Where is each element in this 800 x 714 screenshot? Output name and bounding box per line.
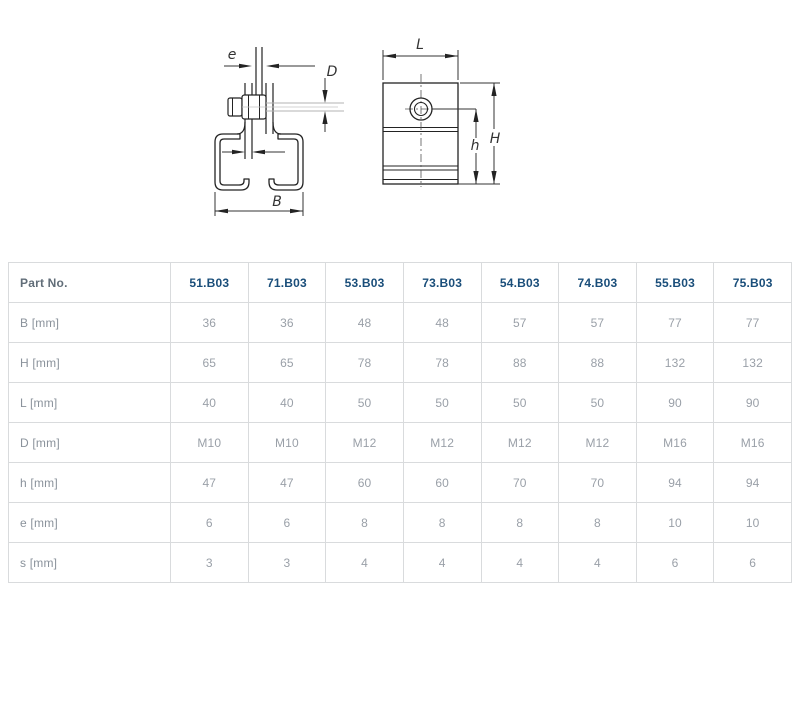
spec-value-cell: 48 bbox=[326, 303, 404, 343]
spec-value-cell: 3 bbox=[248, 543, 326, 583]
spec-value-cell: 4 bbox=[481, 543, 559, 583]
spec-value-cell: 40 bbox=[248, 383, 326, 423]
spec-value-cell: 70 bbox=[559, 463, 637, 503]
table-row: h [mm]4747606070709494 bbox=[9, 463, 792, 503]
spec-value-cell: 6 bbox=[171, 503, 249, 543]
part-no-header-label: Part No. bbox=[9, 263, 171, 303]
spec-value-cell: 57 bbox=[559, 303, 637, 343]
part-number-55b03[interactable]: 55.B03 bbox=[636, 263, 714, 303]
dim-h-arrow-bottom bbox=[473, 171, 478, 184]
spec-value-cell: 10 bbox=[636, 503, 714, 543]
datasheet-page: e D B bbox=[0, 0, 800, 714]
spec-value-cell: 88 bbox=[481, 343, 559, 383]
spec-value-cell: 50 bbox=[326, 383, 404, 423]
spec-value-cell: 90 bbox=[714, 383, 792, 423]
spec-value-cell: 3 bbox=[171, 543, 249, 583]
spec-value-cell: 57 bbox=[481, 303, 559, 343]
part-number-74b03[interactable]: 74.B03 bbox=[559, 263, 637, 303]
spec-value-cell: 65 bbox=[171, 343, 249, 383]
spec-value-cell: 90 bbox=[636, 383, 714, 423]
spec-value-cell: 8 bbox=[403, 503, 481, 543]
spec-value-cell: 77 bbox=[636, 303, 714, 343]
part-number-73b03[interactable]: 73.B03 bbox=[403, 263, 481, 303]
bolt-head bbox=[228, 98, 242, 116]
spec-value-cell: M12 bbox=[481, 423, 559, 463]
spec-value-cell: 50 bbox=[403, 383, 481, 423]
dim-s-arrow-left bbox=[232, 150, 245, 154]
table-row: D [mm]M10M10M12M12M12M12M16M16 bbox=[9, 423, 792, 463]
spec-value-cell: M10 bbox=[171, 423, 249, 463]
spec-value-cell: 78 bbox=[326, 343, 404, 383]
dim-H-arrow-top bbox=[491, 83, 496, 96]
spec-value-cell: 4 bbox=[559, 543, 637, 583]
plate-flares bbox=[237, 122, 281, 134]
table-row: H [mm]656578788888132132 bbox=[9, 343, 792, 383]
spec-value-cell: 36 bbox=[171, 303, 249, 343]
spec-value-cell: 8 bbox=[326, 503, 404, 543]
dim-L-arrow-right bbox=[445, 54, 458, 58]
table-row: s [mm]33444466 bbox=[9, 543, 792, 583]
dimension-label-B: B bbox=[272, 194, 282, 210]
spec-value-cell: 65 bbox=[248, 343, 326, 383]
spec-value-cell: M16 bbox=[714, 423, 792, 463]
dim-e-arrow-left bbox=[239, 64, 252, 68]
spec-value-cell: 50 bbox=[559, 383, 637, 423]
spec-value-cell: 88 bbox=[559, 343, 637, 383]
spec-value-cell: 4 bbox=[403, 543, 481, 583]
dim-L-arrow-left bbox=[383, 54, 396, 58]
spec-value-cell: 36 bbox=[248, 303, 326, 343]
part-number-75b03[interactable]: 75.B03 bbox=[714, 263, 792, 303]
spec-table-body: B [mm]3636484857577777H [mm]656578788888… bbox=[9, 303, 792, 583]
spec-value-cell: 77 bbox=[714, 303, 792, 343]
spec-value-cell: 94 bbox=[636, 463, 714, 503]
spec-value-cell: 6 bbox=[636, 543, 714, 583]
spec-value-cell: 6 bbox=[714, 543, 792, 583]
dimension-label-L: L bbox=[416, 37, 424, 53]
row-label: s [mm] bbox=[9, 543, 171, 583]
row-label: L [mm] bbox=[9, 383, 171, 423]
spec-value-cell: 132 bbox=[636, 343, 714, 383]
spec-value-cell: 47 bbox=[171, 463, 249, 503]
hanger-plate-right bbox=[266, 83, 273, 134]
spec-value-cell: 60 bbox=[326, 463, 404, 503]
spec-value-cell: M10 bbox=[248, 423, 326, 463]
dim-e-arrow-right bbox=[266, 64, 279, 68]
part-number-54b03[interactable]: 54.B03 bbox=[481, 263, 559, 303]
technical-drawing: e D B bbox=[178, 30, 518, 230]
table-row: e [mm]6688881010 bbox=[9, 503, 792, 543]
part-number-53b03[interactable]: 53.B03 bbox=[326, 263, 404, 303]
dimension-label-D: D bbox=[327, 64, 338, 80]
spec-value-cell: M16 bbox=[636, 423, 714, 463]
spec-value-cell: 60 bbox=[403, 463, 481, 503]
row-label: e [mm] bbox=[9, 503, 171, 543]
part-number-51b03[interactable]: 51.B03 bbox=[171, 263, 249, 303]
spec-value-cell: 94 bbox=[714, 463, 792, 503]
dim-D-arrow-top bbox=[322, 90, 327, 103]
table-row: L [mm]4040505050509090 bbox=[9, 383, 792, 423]
dim-B-arrow-left bbox=[215, 209, 228, 213]
dim-D-arrow-bottom bbox=[322, 111, 327, 124]
row-label: H [mm] bbox=[9, 343, 171, 383]
spec-value-cell: M12 bbox=[559, 423, 637, 463]
spec-value-cell: 10 bbox=[714, 503, 792, 543]
spec-value-cell: M12 bbox=[403, 423, 481, 463]
spec-value-cell: M12 bbox=[326, 423, 404, 463]
spec-table: Part No. 51.B03 71.B03 53.B03 73.B03 54.… bbox=[8, 262, 792, 583]
dim-h-arrow-top bbox=[473, 109, 478, 122]
spec-table-header-row: Part No. 51.B03 71.B03 53.B03 73.B03 54.… bbox=[9, 263, 792, 303]
row-label: h [mm] bbox=[9, 463, 171, 503]
spec-value-cell: 4 bbox=[326, 543, 404, 583]
spec-value-cell: 40 bbox=[171, 383, 249, 423]
spec-value-cell: 8 bbox=[559, 503, 637, 543]
spec-value-cell: 78 bbox=[403, 343, 481, 383]
dimension-label-H: H bbox=[490, 131, 501, 147]
dim-H-arrow-bottom bbox=[491, 171, 496, 184]
part-number-71b03[interactable]: 71.B03 bbox=[248, 263, 326, 303]
c-channel-left bbox=[215, 134, 249, 190]
dim-B-arrow-right bbox=[290, 209, 303, 213]
table-row: B [mm]3636484857577777 bbox=[9, 303, 792, 343]
spec-value-cell: 70 bbox=[481, 463, 559, 503]
spec-value-cell: 50 bbox=[481, 383, 559, 423]
dim-s-arrow-right bbox=[252, 150, 265, 154]
spec-value-cell: 6 bbox=[248, 503, 326, 543]
front-view-drawing: e D B bbox=[215, 47, 344, 216]
c-channel-right bbox=[269, 134, 303, 190]
row-label: D [mm] bbox=[9, 423, 171, 463]
side-view-drawing: L h H bbox=[383, 37, 502, 187]
row-label: B [mm] bbox=[9, 303, 171, 343]
spec-value-cell: 47 bbox=[248, 463, 326, 503]
spec-value-cell: 132 bbox=[714, 343, 792, 383]
dimension-label-h: h bbox=[471, 138, 480, 154]
spec-value-cell: 48 bbox=[403, 303, 481, 343]
dim-B-extension-lines bbox=[215, 192, 303, 216]
dimension-label-e: e bbox=[228, 47, 237, 63]
spec-value-cell: 8 bbox=[481, 503, 559, 543]
